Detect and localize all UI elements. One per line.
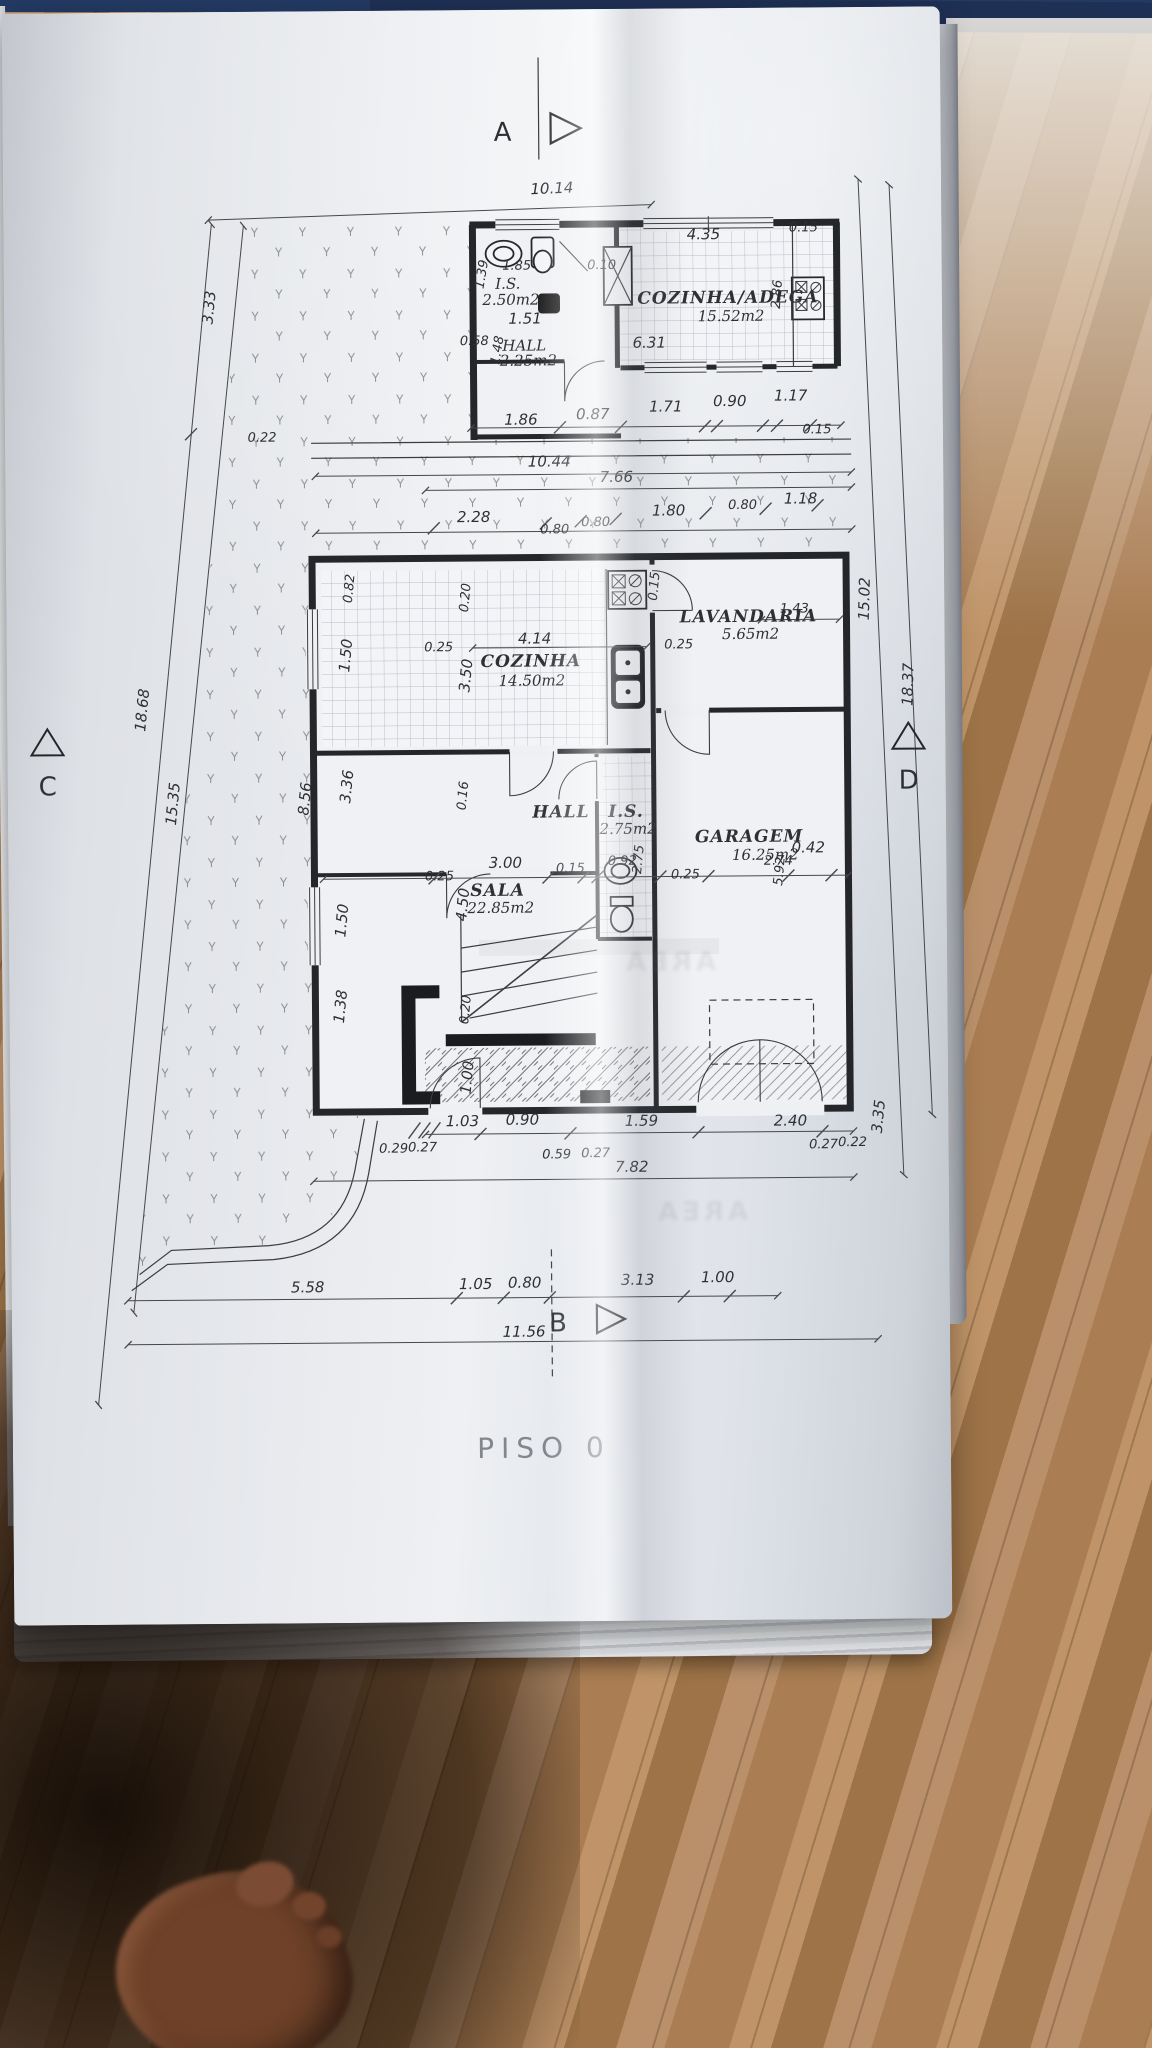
dim: 8.56 — [294, 781, 315, 816]
section-marker-b: B — [549, 1308, 567, 1338]
dim: 2.40 — [774, 1111, 808, 1129]
dim: 0.80 — [728, 498, 757, 513]
dim: 1.59 — [625, 1112, 659, 1130]
drawing-sheet: A B C D I.S. 2.50m2 HALL 2.25m2 COZINHA/… — [2, 6, 953, 1625]
dim: 1.05 — [459, 1275, 493, 1293]
section-arrow-b-icon — [597, 1305, 625, 1333]
foot-toe — [292, 1892, 326, 1920]
dim: 0.58 — [460, 334, 489, 349]
dim: 0.15 — [802, 422, 831, 437]
dim: 1.51 — [508, 309, 542, 327]
dim: 7.66 — [600, 468, 634, 486]
svg-text:AREA: AREA — [654, 1197, 748, 1228]
kitchen-stove-icon — [608, 571, 646, 609]
background-glare — [946, 18, 1152, 638]
section-marker-d: D — [899, 766, 919, 796]
dim: 1.86 — [504, 411, 538, 429]
dim: 0.80 — [540, 522, 569, 537]
dim: 0.27 — [408, 1140, 438, 1155]
dim: 0.82 — [341, 573, 359, 603]
room-name: GARAGEM — [695, 826, 804, 847]
dim: 0.25 — [664, 637, 693, 652]
dim: 6.31 — [633, 334, 667, 352]
dim: 15.35 — [162, 782, 184, 826]
floor-plan-drawing: A B C D I.S. 2.50m2 HALL 2.25m2 COZINHA/… — [2, 6, 953, 1625]
dim: 0.90 — [506, 1111, 540, 1129]
room-name: HALL — [531, 802, 589, 822]
dim: 0.87 — [576, 405, 610, 423]
dim: 0.27 — [581, 1146, 611, 1161]
dim: 3.50 — [455, 658, 476, 693]
dim: 3.35 — [868, 1099, 889, 1134]
dim: 18.37 — [898, 662, 917, 706]
dim: 7.82 — [615, 1158, 649, 1176]
dim: 11.56 — [503, 1322, 546, 1340]
section-arrow-a-icon — [550, 113, 580, 143]
dim: 4.35 — [687, 225, 721, 243]
dim: 0.59 — [542, 1147, 571, 1162]
dim: 0.15 — [646, 571, 664, 601]
section-arrow-d-icon — [892, 722, 924, 748]
dim: 4.50 — [452, 887, 473, 922]
dim: 0.10 — [587, 258, 616, 273]
dim: 3.00 — [489, 854, 523, 872]
room-area: 14.50m2 — [499, 671, 566, 690]
dim: 3.33 — [198, 290, 219, 325]
dim: 1.00 — [701, 1268, 735, 1286]
kitchen-sink-icon — [611, 645, 646, 709]
dim: 0.20 — [457, 995, 475, 1025]
dim: 1.00 — [457, 1060, 478, 1095]
dim: 1.85 — [502, 259, 531, 274]
dim: 1.17 — [774, 386, 808, 404]
dim: 1.71 — [649, 397, 683, 415]
dim: 10.14 — [530, 178, 574, 198]
dim: 0.29 — [379, 1142, 408, 1157]
photo-of-floor-plan: A B C D I.S. 2.50m2 HALL 2.25m2 COZINHA/… — [0, 0, 1152, 2048]
section-marker-a: A — [494, 118, 512, 148]
dim: 5.58 — [291, 1278, 325, 1296]
dim: 0.20 — [457, 583, 475, 613]
dim: 0.16 — [454, 781, 472, 811]
dim: 0.25 — [671, 867, 700, 882]
room-area: 15.52m2 — [698, 307, 765, 326]
dim: 3.36 — [336, 769, 357, 804]
dim: 2.28 — [457, 508, 491, 526]
dim: 10.44 — [528, 452, 571, 470]
room-name: COZINHA/ADEGA — [637, 287, 818, 308]
dim: 4.14 — [518, 629, 552, 647]
dim: 0.25 — [424, 640, 453, 655]
section-arrow-c-icon — [31, 729, 63, 755]
dim: 2.75 — [630, 844, 648, 874]
dim: 0.22 — [838, 1135, 867, 1150]
dim: 1.43 — [780, 601, 809, 616]
dim: 1.18 — [784, 489, 818, 507]
section-marker-c: C — [39, 772, 57, 802]
dim: 0.42 — [791, 838, 825, 856]
floor-title: PISO 0 — [477, 1431, 611, 1465]
dim: 2.86 — [769, 279, 786, 309]
room-area: 2.50m2 — [481, 290, 539, 308]
foot-toe — [316, 1926, 342, 1948]
dim: 1.03 — [446, 1112, 480, 1130]
room-name: COZINHA — [480, 651, 581, 672]
room-area: 22.85m2 — [466, 899, 534, 918]
dim: 0.22 — [247, 431, 276, 446]
dim: 5.92 — [771, 856, 789, 886]
room-area: 2.75m2 — [598, 820, 656, 838]
room-area: 5.65m2 — [722, 625, 779, 643]
dim: 0.80 — [508, 1274, 542, 1292]
wc-icon — [611, 897, 633, 932]
dim: 1.38 — [330, 989, 351, 1024]
dim: 1.80 — [652, 501, 686, 519]
dim: 1.50 — [335, 638, 356, 673]
dim: 0.27 — [809, 1137, 839, 1152]
dim: 0.90 — [713, 392, 747, 410]
dim: 0.80 — [581, 515, 610, 530]
dim: 15.02 — [855, 577, 874, 620]
dim: 0.15 — [789, 220, 818, 235]
dim: 0.25 — [425, 869, 454, 884]
dim: 18.68 — [131, 688, 153, 732]
room-area: 2.25m2 — [499, 351, 557, 369]
dim: 0.15 — [556, 861, 585, 876]
dim: 3.13 — [621, 1271, 655, 1289]
dim: 1.50 — [331, 903, 352, 938]
